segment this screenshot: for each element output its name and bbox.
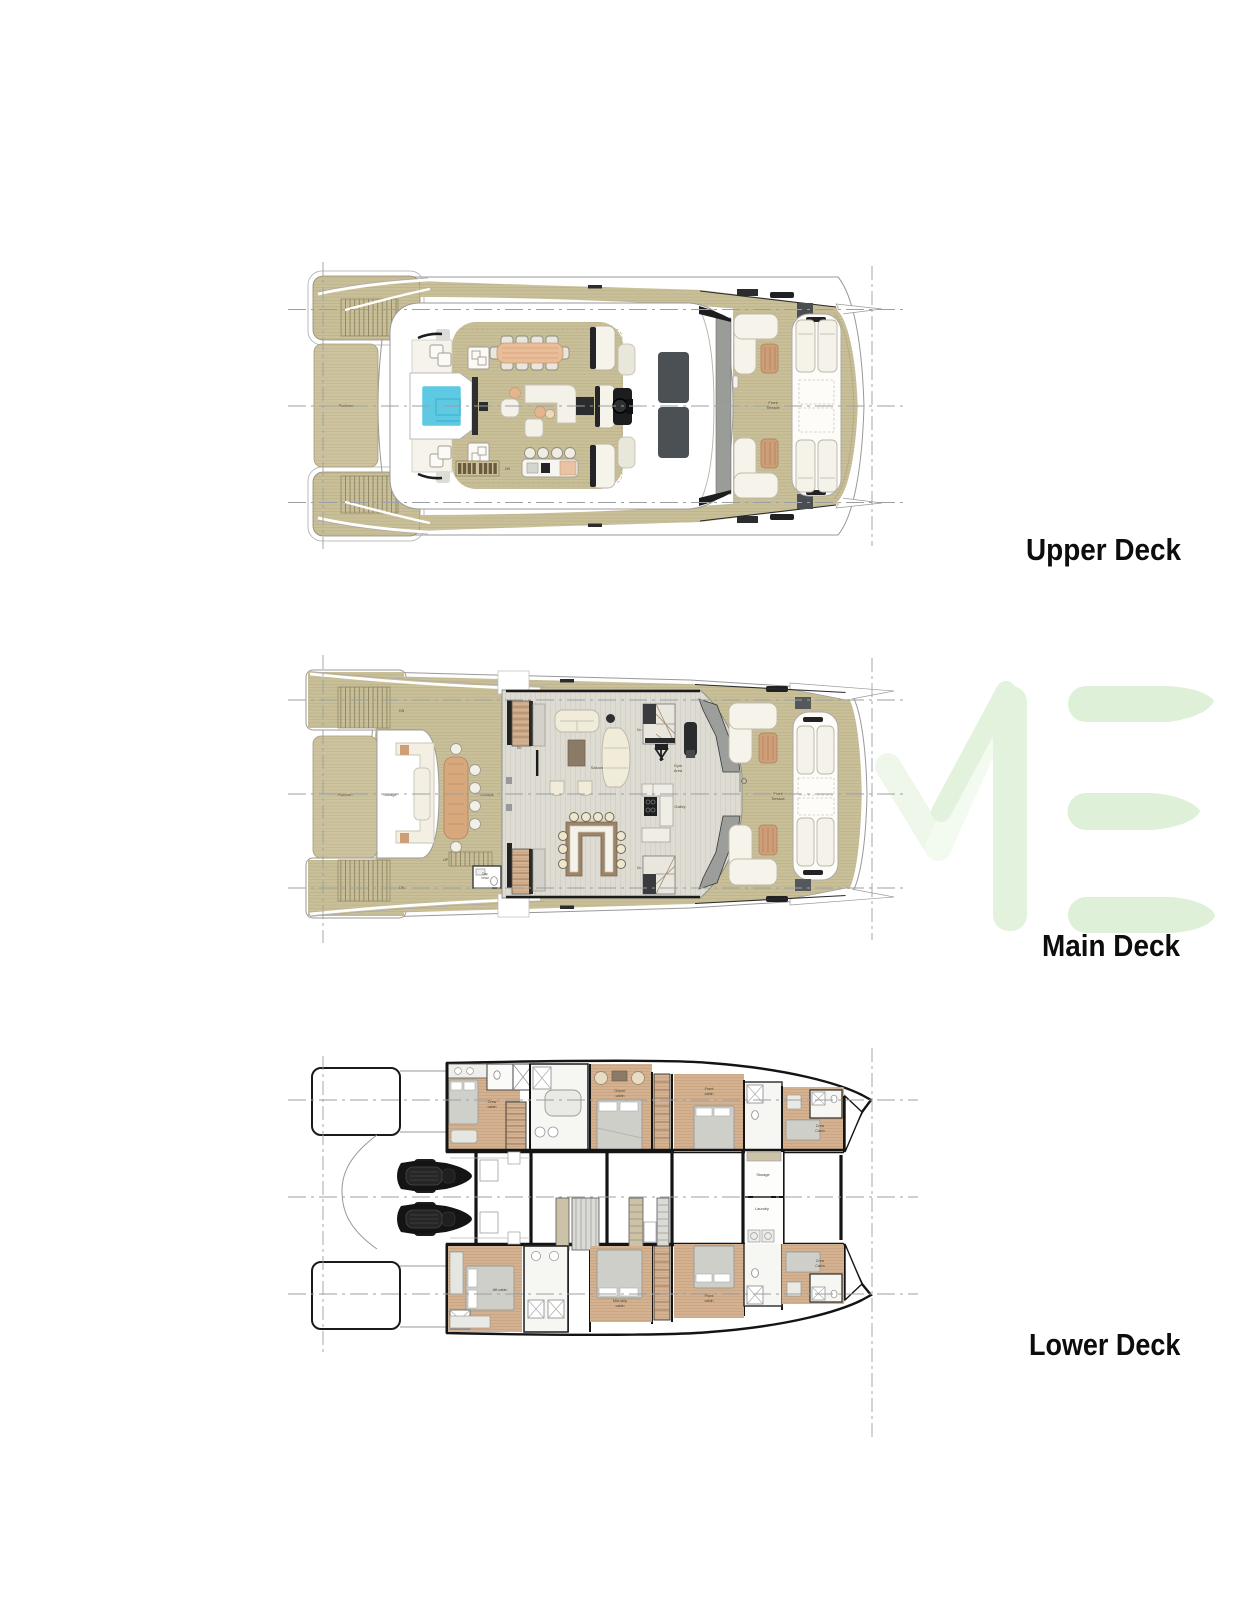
svg-text:Dn: Dn	[637, 866, 641, 870]
svg-text:cabin: cabin	[704, 1299, 713, 1303]
svg-text:Dn: Dn	[517, 746, 521, 750]
svg-text:head: head	[481, 876, 488, 880]
svg-text:Platform: Platform	[339, 403, 355, 408]
svg-text:cabin: cabin	[615, 1304, 624, 1308]
svg-text:Crew: Crew	[816, 1124, 825, 1128]
svg-text:Saloon: Saloon	[591, 765, 603, 770]
svg-text:DN: DN	[505, 467, 511, 471]
svg-text:Front: Front	[705, 1294, 715, 1298]
svg-text:Galley: Galley	[674, 804, 685, 809]
svg-text:Aft cabin: Aft cabin	[493, 1288, 508, 1292]
svg-text:Platform: Platform	[338, 792, 354, 797]
svg-text:Crew: Crew	[816, 1259, 825, 1263]
svg-text:Front: Front	[705, 1087, 715, 1091]
svg-text:Storage: Storage	[756, 1173, 769, 1177]
svg-text:Cabin: Cabin	[815, 1129, 824, 1133]
svg-text:DN: DN	[399, 886, 405, 890]
svg-text:Terrace: Terrace	[771, 796, 785, 801]
svg-text:Mid-ship: Mid-ship	[613, 1299, 627, 1303]
svg-text:Cockpit: Cockpit	[480, 792, 494, 797]
svg-text:cabin: cabin	[487, 1105, 496, 1109]
svg-text:Crew: Crew	[488, 1100, 497, 1104]
svg-text:Laundry: Laundry	[755, 1207, 769, 1211]
svg-text:Dn: Dn	[637, 728, 641, 732]
svg-text:DN: DN	[399, 709, 405, 713]
svg-text:Cabin: Cabin	[815, 1264, 824, 1268]
svg-text:UP: UP	[443, 858, 449, 862]
svg-text:Garage: Garage	[383, 792, 397, 797]
svg-text:Area: Area	[674, 768, 683, 773]
svg-text:cabin: cabin	[615, 1094, 624, 1098]
svg-text:Owner: Owner	[614, 1089, 626, 1093]
svg-text:cabin: cabin	[704, 1092, 713, 1096]
